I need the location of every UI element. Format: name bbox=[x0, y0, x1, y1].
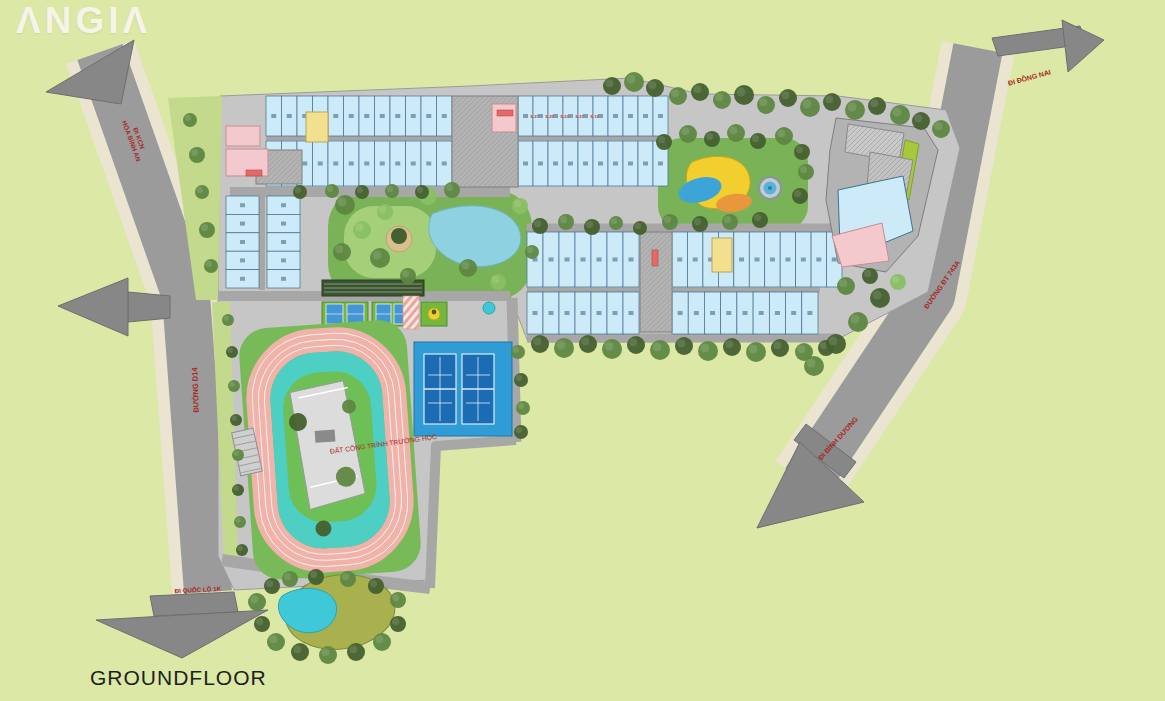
tree-highlight bbox=[492, 276, 499, 283]
tree-highlight bbox=[694, 218, 701, 225]
tree-highlight bbox=[749, 345, 758, 354]
unit-roof-mark bbox=[281, 258, 286, 262]
unit-label: S.21 bbox=[575, 114, 584, 119]
unit-roof-mark bbox=[281, 222, 286, 226]
unit-roof-mark bbox=[364, 114, 369, 118]
tree-highlight bbox=[754, 214, 761, 221]
tree-highlight bbox=[417, 187, 423, 193]
tree-highlight bbox=[232, 416, 237, 421]
sand-tree bbox=[391, 228, 407, 244]
amenity-block-pink bbox=[226, 126, 260, 146]
unit-roof-mark bbox=[380, 162, 385, 166]
unit-roof-mark bbox=[832, 258, 837, 262]
unit-roof-mark bbox=[726, 311, 731, 315]
unit-roof-mark bbox=[349, 162, 354, 166]
unit-roof-mark bbox=[318, 162, 323, 166]
tree-highlight bbox=[228, 348, 233, 353]
tree-highlight bbox=[807, 359, 816, 368]
unit-roof-mark bbox=[613, 114, 618, 118]
unit-roof-mark bbox=[240, 203, 245, 207]
unit-roof-mark bbox=[549, 258, 554, 262]
lane-road bbox=[512, 298, 516, 442]
unit-roof-mark bbox=[302, 162, 307, 166]
unit-roof-mark bbox=[628, 114, 633, 118]
unit-roof-mark bbox=[240, 240, 245, 244]
tree-highlight bbox=[321, 648, 329, 656]
tree-highlight bbox=[527, 247, 533, 253]
unit-roof-mark bbox=[549, 311, 554, 315]
unit-roof-mark bbox=[287, 114, 292, 118]
unit-roof-mark bbox=[442, 162, 447, 166]
tree-highlight bbox=[250, 595, 258, 603]
tree-highlight bbox=[781, 91, 789, 99]
tree-highlight bbox=[893, 108, 902, 117]
unit-roof-mark bbox=[565, 258, 570, 262]
unit-roof-mark bbox=[281, 277, 286, 281]
tree-highlight bbox=[848, 103, 857, 112]
tree-highlight bbox=[516, 427, 522, 433]
unit-roof-mark bbox=[629, 258, 634, 262]
unit-roof-mark bbox=[613, 258, 618, 262]
unit-roof-mark bbox=[395, 114, 400, 118]
tree-highlight bbox=[266, 580, 273, 587]
tree-highlight bbox=[797, 345, 805, 353]
unit-roof-mark bbox=[411, 162, 416, 166]
unit-roof-mark bbox=[658, 162, 663, 166]
unit-roof-mark bbox=[442, 114, 447, 118]
unit-roof-mark bbox=[349, 114, 354, 118]
unit-roof-mark bbox=[801, 258, 806, 262]
unit-roof-mark bbox=[807, 311, 812, 315]
unit-roof-mark bbox=[271, 114, 276, 118]
tree-highlight bbox=[342, 573, 349, 580]
tree-highlight bbox=[851, 315, 860, 324]
unit-roof-mark bbox=[770, 258, 775, 262]
tree-highlight bbox=[648, 81, 656, 89]
unit-roof-mark bbox=[426, 114, 431, 118]
unit-roof-mark bbox=[643, 114, 648, 118]
unit-roof-mark bbox=[523, 114, 528, 118]
tree-highlight bbox=[355, 223, 363, 231]
unit-roof-mark bbox=[743, 311, 748, 315]
tree-highlight bbox=[586, 221, 593, 228]
unit-roof-mark bbox=[583, 162, 588, 166]
tree-highlight bbox=[269, 635, 277, 643]
fountain-center bbox=[768, 186, 772, 190]
tree-highlight bbox=[514, 200, 521, 207]
unit-roof-mark bbox=[629, 311, 634, 315]
tree-highlight bbox=[914, 114, 922, 122]
tree-highlight bbox=[706, 133, 713, 140]
amenity-block-yellow bbox=[306, 112, 328, 142]
tree-highlight bbox=[715, 93, 723, 101]
unit-roof-mark bbox=[240, 277, 245, 281]
amenity-block-yellow bbox=[712, 238, 732, 272]
unit-roof-mark bbox=[678, 311, 683, 315]
tree-highlight bbox=[635, 223, 641, 229]
tree-highlight bbox=[664, 216, 671, 223]
unit-roof-mark bbox=[565, 311, 570, 315]
tree-highlight bbox=[803, 100, 812, 109]
unit-roof-mark bbox=[411, 114, 416, 118]
unit-roof-mark bbox=[240, 258, 245, 262]
unit-roof-mark bbox=[553, 162, 558, 166]
tree-highlight bbox=[681, 127, 689, 135]
tree-highlight bbox=[185, 115, 191, 121]
tree-highlight bbox=[310, 571, 317, 578]
tree-highlight bbox=[605, 79, 613, 87]
unit-roof-mark bbox=[523, 162, 528, 166]
tree-highlight bbox=[293, 645, 301, 653]
tree-highlight bbox=[206, 261, 212, 267]
tree-highlight bbox=[870, 99, 878, 107]
striped-walkway bbox=[403, 296, 419, 329]
unit-roof-mark bbox=[598, 162, 603, 166]
tree-highlight bbox=[892, 276, 899, 283]
road-label-d14: ĐƯỜNG D14 bbox=[190, 367, 201, 413]
water-feature-small bbox=[483, 302, 495, 314]
tree-highlight bbox=[224, 316, 229, 321]
unit-roof-mark bbox=[426, 162, 431, 166]
tree-highlight bbox=[759, 98, 767, 106]
tree-highlight bbox=[518, 403, 524, 409]
site-plan-map: ĐẤT CÔNG TRÌNH TRƯỜNG HỌC ĐI KCN HÓA BÌN… bbox=[0, 0, 1165, 701]
amenity-block-pink bbox=[492, 104, 516, 132]
unit-roof-mark bbox=[364, 162, 369, 166]
unit-roof-mark bbox=[597, 258, 602, 262]
tree-highlight bbox=[461, 261, 469, 269]
unit-roof-mark bbox=[643, 162, 648, 166]
tree-highlight bbox=[256, 618, 263, 625]
tree-highlight bbox=[402, 270, 409, 277]
tree-highlight bbox=[357, 187, 363, 193]
unit-roof-mark bbox=[380, 114, 385, 118]
unit-roof-mark bbox=[785, 258, 790, 262]
tree-highlight bbox=[557, 341, 566, 350]
page-title: GROUNDFLOOR bbox=[90, 666, 267, 690]
tree-highlight bbox=[238, 546, 243, 551]
play-pad-tree bbox=[432, 310, 437, 315]
tree-highlight bbox=[800, 166, 807, 173]
unit-roof-mark bbox=[759, 311, 764, 315]
unit-roof-mark bbox=[333, 114, 338, 118]
tree-highlight bbox=[677, 339, 685, 347]
tree-highlight bbox=[392, 594, 399, 601]
tree-highlight bbox=[327, 186, 333, 192]
tree-highlight bbox=[387, 186, 393, 192]
tree-highlight bbox=[379, 206, 386, 213]
tree-highlight bbox=[829, 337, 838, 346]
unit-roof-mark bbox=[240, 222, 245, 226]
tree-highlight bbox=[777, 129, 785, 137]
tree-highlight bbox=[201, 224, 208, 231]
red-name-tag bbox=[246, 170, 262, 176]
tree-highlight bbox=[737, 88, 746, 97]
tree-highlight bbox=[234, 451, 239, 456]
unit-roof-mark bbox=[281, 203, 286, 207]
tree-highlight bbox=[724, 216, 731, 223]
tree-highlight bbox=[338, 198, 347, 207]
angia-logo: ΛNGIΛ bbox=[16, 0, 151, 42]
unit-label: S.27 bbox=[530, 114, 539, 119]
tree-highlight bbox=[191, 149, 198, 156]
tree-highlight bbox=[627, 75, 636, 84]
unit-roof-mark bbox=[581, 311, 586, 315]
tree-highlight bbox=[796, 146, 803, 153]
core-building-hatch bbox=[640, 232, 672, 332]
unit-label: S.25 bbox=[545, 114, 554, 119]
unit-label: S.23 bbox=[560, 114, 569, 119]
unit-roof-mark bbox=[533, 311, 538, 315]
tree-highlight bbox=[671, 89, 679, 97]
tree-highlight bbox=[284, 573, 291, 580]
unit-roof-mark bbox=[581, 258, 586, 262]
unit-roof-mark bbox=[694, 311, 699, 315]
red-name-tag bbox=[652, 250, 658, 266]
tree-highlight bbox=[375, 635, 383, 643]
tree-highlight bbox=[725, 340, 733, 348]
site-plan-page: ĐẤT CÔNG TRÌNH TRƯỜNG HỌC ĐI KCN HÓA BÌN… bbox=[0, 0, 1165, 701]
tree-highlight bbox=[658, 136, 665, 143]
tree-highlight bbox=[236, 518, 241, 523]
tree-highlight bbox=[230, 382, 235, 387]
unit-roof-mark bbox=[739, 258, 744, 262]
unit-roof-mark bbox=[281, 240, 286, 244]
tree-highlight bbox=[629, 338, 637, 346]
tree-highlight bbox=[560, 216, 567, 223]
unit-roof-mark bbox=[395, 162, 400, 166]
tree-highlight bbox=[605, 342, 614, 351]
unit-roof-mark bbox=[538, 162, 543, 166]
tree-highlight bbox=[446, 184, 453, 191]
tree-highlight bbox=[349, 645, 357, 653]
tree-highlight bbox=[653, 343, 662, 352]
tree-highlight bbox=[825, 95, 833, 103]
tree-highlight bbox=[729, 126, 737, 134]
tree-highlight bbox=[370, 580, 377, 587]
tree-highlight bbox=[534, 220, 541, 227]
school-roof-core bbox=[315, 429, 336, 442]
tree-highlight bbox=[864, 270, 871, 277]
unit-roof-mark bbox=[628, 162, 633, 166]
tree-highlight bbox=[295, 187, 301, 193]
tree-highlight bbox=[581, 337, 589, 345]
unit-roof-mark bbox=[658, 114, 663, 118]
unit-roof-mark bbox=[613, 311, 618, 315]
tree-highlight bbox=[234, 486, 239, 491]
unit-roof-mark bbox=[755, 258, 760, 262]
unit-roof-mark bbox=[568, 162, 573, 166]
tree-highlight bbox=[197, 187, 203, 193]
unit-roof-mark bbox=[597, 311, 602, 315]
tree-highlight bbox=[839, 279, 847, 287]
red-name-tag bbox=[497, 110, 513, 116]
tree-highlight bbox=[516, 375, 522, 381]
unit-roof-mark bbox=[693, 258, 698, 262]
arrow-west-shaft bbox=[128, 292, 170, 322]
unit-roof-mark bbox=[816, 258, 821, 262]
tree-highlight bbox=[873, 291, 882, 300]
tree-highlight bbox=[373, 251, 382, 260]
unit-roof-mark bbox=[710, 311, 715, 315]
unit-roof-mark bbox=[775, 311, 780, 315]
tree-highlight bbox=[513, 347, 519, 353]
tree-highlight bbox=[773, 341, 781, 349]
tree-highlight bbox=[392, 618, 399, 625]
tree-highlight bbox=[693, 85, 701, 93]
unit-roof-mark bbox=[613, 162, 618, 166]
tree-highlight bbox=[611, 218, 617, 224]
tree-highlight bbox=[701, 344, 710, 353]
unit-roof-mark bbox=[677, 258, 682, 262]
tree-highlight bbox=[794, 190, 801, 197]
unit-roof-mark bbox=[333, 162, 338, 166]
unit-roof-mark bbox=[791, 311, 796, 315]
tree-highlight bbox=[752, 135, 759, 142]
tree-highlight bbox=[335, 245, 343, 253]
tree-highlight bbox=[533, 337, 541, 345]
unit-label: S.19 bbox=[590, 114, 599, 119]
tree-highlight bbox=[934, 122, 942, 130]
